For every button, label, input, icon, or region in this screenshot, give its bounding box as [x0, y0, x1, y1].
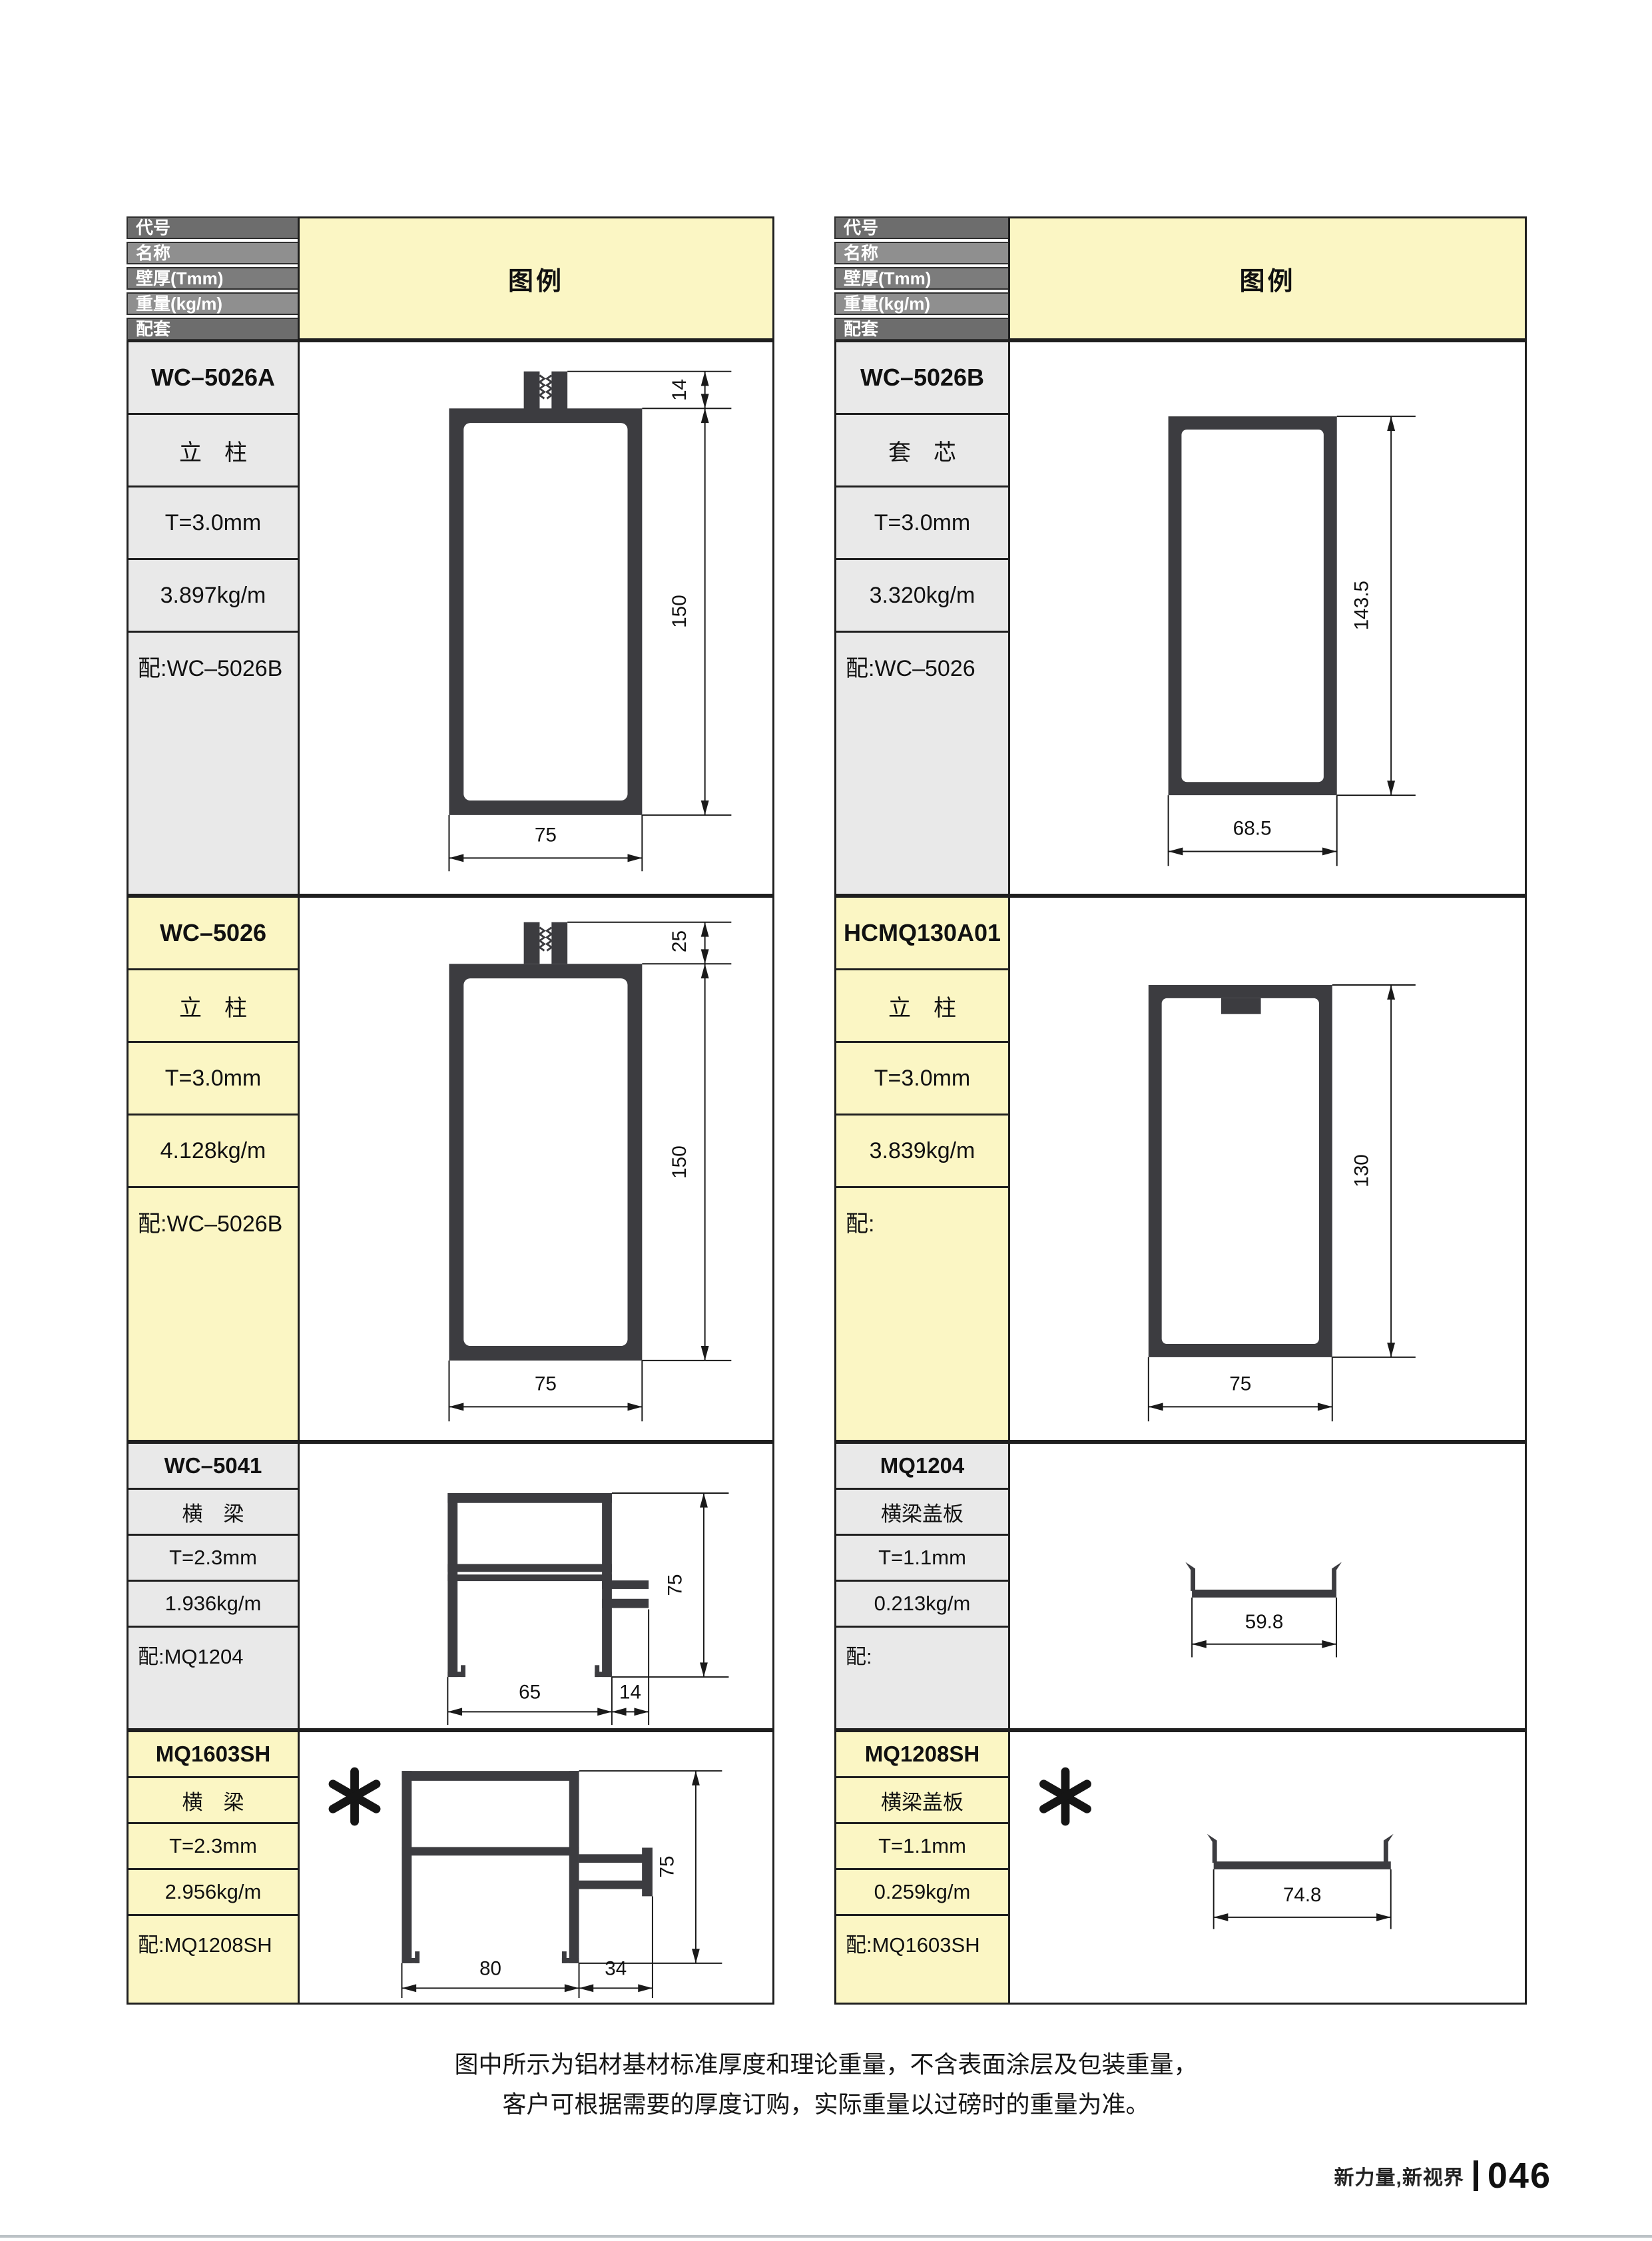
dimensions: 59.8 — [1192, 1598, 1336, 1658]
profile-drawing-mq1204: 59.8 — [1010, 1444, 1525, 1728]
field-label-name-text: 名称 — [136, 243, 170, 263]
profile-body — [449, 372, 642, 815]
field-label-thickness: 壁厚(Tmm) — [834, 267, 1010, 290]
unit-weight: 4.128kg/m — [129, 1116, 298, 1188]
legend-label: 图例 — [508, 260, 564, 297]
dim-arm-width: 34 — [605, 1958, 627, 1980]
asterisk-marker — [1043, 1771, 1087, 1821]
dim-width: 65 — [519, 1682, 541, 1704]
field-label-thickness-text: 壁厚(Tmm) — [844, 268, 931, 288]
dim-tab-width: 14 — [619, 1682, 641, 1704]
drawing-cell-wc5041: 75 65 14 — [298, 1442, 774, 1730]
unit-weight: 1.936kg/m — [129, 1582, 298, 1628]
wall-thickness: T=3.0mm — [129, 1043, 298, 1116]
matching-profile: 配: — [836, 1188, 1008, 1440]
drawing-cell-mq1204: 59.8 — [1008, 1442, 1527, 1730]
product-info-mq1208sh: MQ1208SH 横梁盖板 T=1.1mm 0.259kg/m 配:MQ1603… — [834, 1730, 1010, 2005]
product-row-wc5026a: WC–5026A 立 柱 T=3.0mm 3.897kg/m 配:WC–5026… — [127, 340, 774, 896]
field-label-match-text: 配套 — [844, 319, 878, 339]
profile-body — [1207, 1834, 1394, 1869]
dim-height: 130 — [1350, 1154, 1372, 1187]
product-row-wc5041: WC–5041 横 梁 T=2.3mm 1.936kg/m 配:MQ1204 — [127, 1442, 774, 1730]
product-info-wc5026b: WC–5026B 套 芯 T=3.0mm 3.320kg/m 配:WC–5026 — [834, 340, 1010, 896]
legend-header-right: 图例 — [1008, 216, 1527, 340]
profile-drawing-wc5041: 75 65 14 — [300, 1444, 772, 1728]
dim-height: 75 — [664, 1574, 686, 1596]
dim-height: 150 — [669, 595, 690, 628]
unit-weight: 0.259kg/m — [836, 1870, 1008, 1916]
product-code: WC–5026A — [129, 342, 298, 415]
field-label-name: 名称 — [127, 242, 300, 264]
product-row-wc5026b: WC–5026B 套 芯 T=3.0mm 3.320kg/m 配:WC–5026 — [834, 340, 1527, 896]
unit-weight: 3.897kg/m — [129, 560, 298, 633]
product-info-mq1603sh: MQ1603SH 横 梁 T=2.3mm 2.956kg/m 配:MQ1208S… — [127, 1730, 300, 2005]
product-row-mq1603sh: MQ1603SH 横 梁 T=2.3mm 2.956kg/m 配:MQ1208S… — [127, 1730, 774, 2005]
profile-drawing-hcmq130a01: 130 75 — [1010, 898, 1525, 1440]
profile-body — [1149, 985, 1332, 1357]
profile-drawing-wc5026a: 14 150 75 — [300, 342, 772, 894]
matching-profile: 配:MQ1204 — [129, 1628, 298, 1728]
wall-thickness: T=1.1mm — [836, 1824, 1008, 1870]
page-bottom-edge — [0, 2235, 1652, 2238]
dim-width: 75 — [1229, 1373, 1251, 1395]
profile-drawing-wc5026b: 143.5 68.5 — [1010, 342, 1525, 894]
profile-drawing-mq1208sh: 74.8 — [1010, 1732, 1525, 2003]
product-code: HCMQ130A01 — [836, 898, 1008, 970]
unit-weight: 0.213kg/m — [836, 1582, 1008, 1628]
dim-tab-height: 14 — [669, 379, 690, 401]
product-info-wc5026a: WC–5026A 立 柱 T=3.0mm 3.897kg/m 配:WC–5026… — [127, 340, 300, 896]
wall-thickness: T=2.3mm — [129, 1536, 298, 1582]
dim-height: 150 — [669, 1145, 690, 1179]
profile-body — [1169, 416, 1337, 795]
product-name: 立 柱 — [129, 970, 298, 1043]
dim-height: 143.5 — [1350, 581, 1372, 631]
product-name: 套 芯 — [836, 415, 1008, 487]
field-label-code: 代号 — [127, 216, 300, 239]
matching-profile: 配: — [836, 1628, 1008, 1728]
field-label-name: 名称 — [834, 242, 1010, 264]
field-label-thickness-text: 壁厚(Tmm) — [136, 268, 223, 288]
dim-width: 74.8 — [1283, 1884, 1322, 1906]
matching-profile: 配:WC–5026B — [129, 1188, 298, 1440]
product-name: 立 柱 — [129, 415, 298, 487]
product-code: WC–5041 — [129, 1444, 298, 1490]
dim-height: 75 — [656, 1856, 678, 1878]
page-footer: 新力量,新视界 046 — [1334, 2155, 1551, 2196]
profile-drawing-mq1603sh: 75 80 34 — [300, 1732, 772, 2003]
dimensions: 75 65 14 — [447, 1493, 728, 1725]
dim-width: 80 — [479, 1958, 501, 1980]
field-label-match: 配套 — [834, 318, 1010, 340]
product-row-hcmq130a01: HCMQ130A01 立 柱 T=3.0mm 3.839kg/m 配: — [834, 896, 1527, 1442]
wall-thickness: T=2.3mm — [129, 1824, 298, 1870]
profile-body — [449, 922, 642, 1361]
brand-slogan: 新力量,新视界 — [1334, 2161, 1464, 2190]
product-name: 横 梁 — [129, 1490, 298, 1536]
product-name: 立 柱 — [836, 970, 1008, 1043]
field-label-code-text: 代号 — [136, 218, 170, 238]
field-label-weight: 重量(kg/m) — [127, 292, 300, 315]
wall-thickness: T=3.0mm — [836, 1043, 1008, 1116]
unit-weight: 2.956kg/m — [129, 1870, 298, 1916]
field-label-name-text: 名称 — [844, 243, 878, 263]
product-row-mq1204: MQ1204 横梁盖板 T=1.1mm 0.213kg/m 配: — [834, 1442, 1527, 1730]
product-info-hcmq130a01: HCMQ130A01 立 柱 T=3.0mm 3.839kg/m 配: — [834, 896, 1010, 1442]
dim-width: 75 — [535, 824, 557, 846]
field-label-match: 配套 — [127, 318, 300, 340]
matching-profile: 配:MQ1208SH — [129, 1916, 298, 2003]
product-row-mq1208sh: MQ1208SH 横梁盖板 T=1.1mm 0.259kg/m 配:MQ1603… — [834, 1730, 1527, 2005]
product-code: WC–5026 — [129, 898, 298, 970]
legend-label: 图例 — [1239, 260, 1295, 297]
dimensions: 75 80 34 — [402, 1771, 722, 1998]
matching-profile: 配:WC–5026B — [129, 633, 298, 894]
footer-divider-bar — [1474, 2160, 1478, 2191]
product-name: 横梁盖板 — [836, 1490, 1008, 1536]
dim-width: 75 — [535, 1373, 557, 1395]
unit-weight: 3.839kg/m — [836, 1116, 1008, 1188]
unit-weight: 3.320kg/m — [836, 560, 1008, 633]
profile-drawing-wc5026: 25 150 75 — [300, 898, 772, 1440]
product-code: MQ1603SH — [129, 1732, 298, 1778]
drawing-cell-mq1208sh: 74.8 — [1008, 1730, 1527, 2005]
field-label-code: 代号 — [834, 216, 1010, 239]
page-number: 046 — [1488, 2155, 1551, 2196]
field-label-code-text: 代号 — [844, 218, 878, 238]
profile-body — [1185, 1562, 1342, 1598]
spec-table-left: 代号 名称 壁厚(Tmm) 重量(kg/m) 配套 图例 WC–5026A 立 … — [127, 216, 774, 2005]
dim-tab-height: 25 — [669, 930, 690, 952]
wall-thickness: T=3.0mm — [836, 487, 1008, 560]
profile-body — [402, 1771, 652, 1963]
dim-width: 68.5 — [1233, 818, 1272, 840]
wall-thickness: T=3.0mm — [129, 487, 298, 560]
field-label-weight-text: 重量(kg/m) — [136, 294, 222, 314]
field-label-weight: 重量(kg/m) — [834, 292, 1010, 315]
dim-width: 59.8 — [1245, 1611, 1284, 1633]
drawing-cell-wc5026b: 143.5 68.5 — [1008, 340, 1527, 896]
product-code: MQ1204 — [836, 1444, 1008, 1490]
dimensions: 74.8 — [1214, 1869, 1391, 1929]
footer-note-line2: 客户可根据需要的厚度订购，实际重量以过磅时的重量为准。 — [0, 2084, 1652, 2124]
spec-table-right: 代号 名称 壁厚(Tmm) 重量(kg/m) 配套 图例 WC–5026B 套 … — [834, 216, 1527, 2005]
product-info-mq1204: MQ1204 横梁盖板 T=1.1mm 0.213kg/m 配: — [834, 1442, 1010, 1730]
wall-thickness: T=1.1mm — [836, 1536, 1008, 1582]
drawing-cell-wc5026: 25 150 75 — [298, 896, 774, 1442]
asterisk-marker — [333, 1771, 376, 1821]
product-code: WC–5026B — [836, 342, 1008, 415]
product-row-wc5026: WC–5026 立 柱 T=3.0mm 4.128kg/m 配:WC–5026B — [127, 896, 774, 1442]
field-label-match-text: 配套 — [136, 319, 170, 339]
field-label-weight-text: 重量(kg/m) — [844, 294, 930, 314]
footer-note-line1: 图中所示为铝材基材标准厚度和理论重量，不含表面涂层及包装重量， — [0, 2045, 1652, 2084]
catalog-page: { "header": { "field_labels": ["代号", "名称… — [0, 0, 1652, 2241]
product-code: MQ1208SH — [836, 1732, 1008, 1778]
product-name: 横 梁 — [129, 1778, 298, 1824]
drawing-cell-wc5026a: 14 150 75 — [298, 340, 774, 896]
field-label-thickness: 壁厚(Tmm) — [127, 267, 300, 290]
drawing-cell-mq1603sh: 75 80 34 — [298, 1730, 774, 2005]
drawing-cell-hcmq130a01: 130 75 — [1008, 896, 1527, 1442]
profile-body — [447, 1493, 649, 1677]
product-name: 横梁盖板 — [836, 1778, 1008, 1824]
matching-profile: 配:WC–5026 — [836, 633, 1008, 894]
matching-profile: 配:MQ1603SH — [836, 1916, 1008, 2003]
legend-header-left: 图例 — [298, 216, 774, 340]
product-info-wc5026: WC–5026 立 柱 T=3.0mm 4.128kg/m 配:WC–5026B — [127, 896, 300, 1442]
product-info-wc5041: WC–5041 横 梁 T=2.3mm 1.936kg/m 配:MQ1204 — [127, 1442, 300, 1730]
